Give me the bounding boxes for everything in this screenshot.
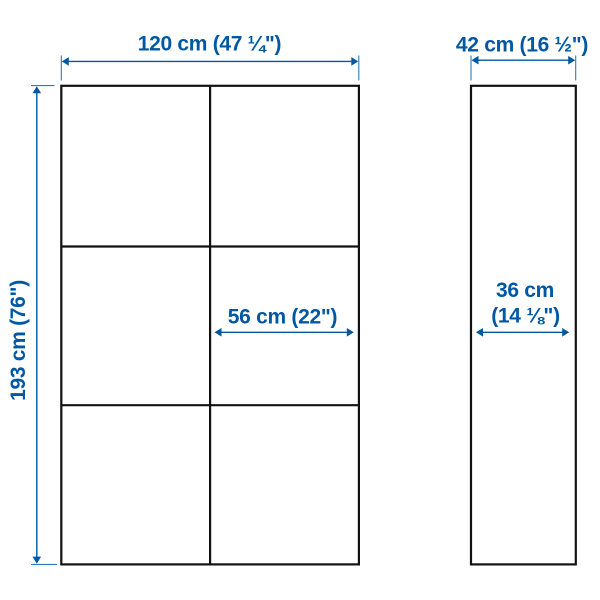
svg-text:42 cm (16 ½"): 42 cm (16 ½") (456, 34, 588, 57)
svg-text:36 cm: 36 cm (496, 279, 554, 302)
svg-text:120 cm (47 ¼"): 120 cm (47 ¼") (138, 33, 282, 56)
svg-text:56 cm (22"): 56 cm (22") (228, 306, 337, 329)
svg-text:193 cm (76"): 193 cm (76") (7, 280, 30, 401)
svg-text:(14 ⅛"): (14 ⅛") (491, 304, 560, 327)
